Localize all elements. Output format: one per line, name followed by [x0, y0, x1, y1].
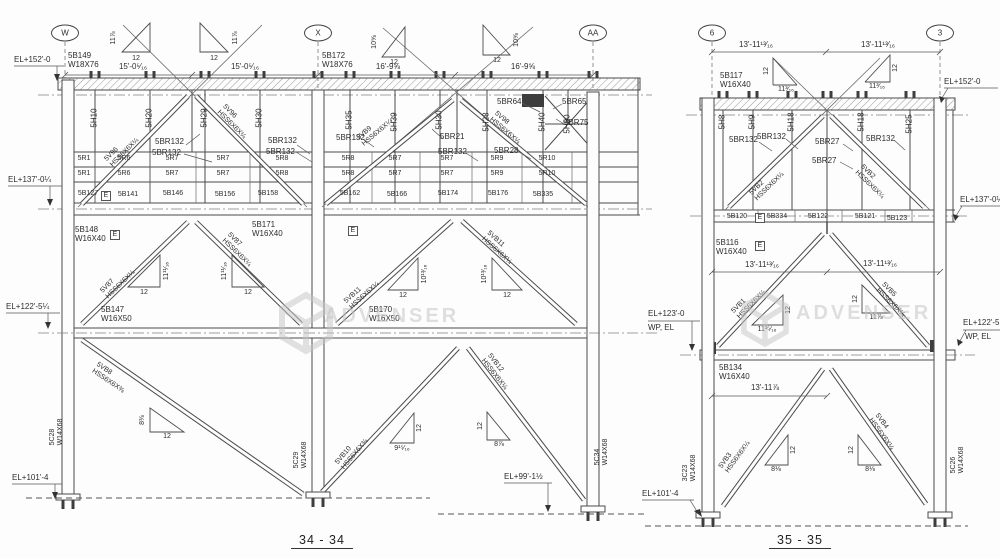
elevation-label: EL+101'-4	[642, 490, 678, 499]
brace-label: 5BR132	[268, 137, 297, 146]
dimension: 13'-11¹³⁄₁₆	[861, 41, 895, 50]
elevation-label: EL+137'-0¼	[8, 176, 51, 185]
brace-label: 5BR21	[440, 133, 464, 142]
rail-label: 5R7	[441, 170, 454, 178]
rail-label: 5R7	[166, 170, 179, 178]
chord-beam-label: 5B121	[855, 213, 875, 221]
slope-run: 12	[390, 59, 398, 67]
slope-run: 12	[848, 446, 856, 454]
slope-run: 12	[416, 424, 424, 432]
vertical-member-label: 5H8	[719, 115, 728, 130]
column-label: 5C34W14X68	[594, 439, 610, 466]
slope-run: 12	[493, 57, 501, 65]
chord-beam-label: 5B174	[438, 190, 458, 198]
slope-rise: 8⅜	[139, 415, 147, 425]
brace-label: 5BR132	[757, 133, 786, 142]
chord-beam-label: 5B141	[118, 191, 138, 199]
chord-beam-label: 5B162	[340, 190, 360, 198]
elevation-label: EL+101'-4	[12, 474, 48, 483]
slope-run: 12	[399, 292, 407, 300]
slope-rise: 10¹³⁄₁₆	[421, 265, 429, 284]
slope-run: 12	[163, 433, 171, 441]
slope-run: 12	[210, 55, 218, 63]
vertical-member-label: 5H18	[788, 112, 797, 131]
brace-label: 5BR65	[562, 98, 586, 107]
rail-label: 5R7	[217, 155, 230, 163]
elevation-label: EL+137'-0¼	[960, 196, 1000, 205]
slope-rise: 11¹⁵⁄₁₆	[758, 326, 777, 334]
vertical-member-label: 5H29	[201, 108, 210, 127]
beam-label: 5B147W16X50	[101, 306, 132, 324]
chord-beam-label: 5B120	[727, 213, 747, 221]
dimension: 13'-11¹³⁄₁₆	[739, 41, 773, 50]
dimension: 13'-11¹³⁄₁₆	[863, 260, 897, 269]
rail-label: 5R7	[217, 170, 230, 178]
brace-label: 5BR132	[266, 148, 295, 157]
brace-label: 5BR132	[729, 136, 758, 145]
elevation-label: EL+122'-5¼	[6, 303, 49, 312]
rail-label: 5R8	[342, 155, 355, 163]
slope-run: 12	[763, 67, 771, 75]
beam-label: 5B148W16X40	[75, 226, 106, 244]
slope-run: 12	[790, 446, 798, 454]
slope-rise: 11¹¹⁄₁₆	[221, 262, 229, 280]
grid-bubble-aa: AA	[579, 25, 607, 42]
brace-label: 5BR75	[564, 119, 588, 128]
rail-label: 5R1	[78, 155, 91, 163]
brace-label: 5BR132	[155, 138, 184, 147]
column-label: 5C28W14X68	[49, 419, 65, 446]
brace-label: 5BR64	[497, 98, 521, 107]
vertical-member-label: 5H30	[256, 108, 265, 127]
rail-label: 5R8	[342, 170, 355, 178]
column-label: 5C26W14X68	[950, 447, 966, 474]
chord-beam-label: 5B334	[767, 213, 787, 221]
vertical-member-label: 5H40	[539, 112, 548, 131]
chord-beam-label: 5B156	[215, 191, 235, 199]
elevation-label: EL+99'-1½	[504, 473, 543, 482]
column-label: 3C23W14X68	[682, 455, 698, 482]
embed-flag: E	[755, 213, 765, 223]
beam-label: 5B134W16X40	[719, 364, 750, 382]
section-title-35: 35 - 35	[769, 533, 831, 549]
slope-rise: 11⅞	[869, 314, 882, 322]
rail-label: 5R7	[389, 170, 402, 178]
slope-run: 12	[132, 55, 140, 63]
brace-label: 5BR132	[438, 148, 467, 157]
slope-rise: 11³⁄₁₆	[778, 86, 794, 94]
chord-beam-label: 5B146	[163, 190, 183, 198]
slope-rise: 11¹¹⁄₁₆	[163, 262, 171, 280]
dimension: 15'-0⁵⁄₁₆	[231, 63, 259, 72]
slope-run: 12	[477, 422, 485, 430]
vertical-member-label: 5H25	[906, 114, 915, 133]
vertical-member-label: 5H30	[436, 110, 445, 129]
slope-run: 12	[503, 292, 511, 300]
slope-rise: 10⅝	[513, 33, 521, 47]
beam-label: 5B171W16X40	[252, 221, 283, 239]
vertical-member-label: 5H10	[91, 108, 100, 127]
girder-label: 5B172W18X76	[322, 52, 353, 70]
rail-label: 5R10	[539, 170, 556, 178]
girder-label: 5B117W16X40	[720, 72, 751, 90]
workpoint-label: WP, EL	[965, 333, 991, 342]
slope-rise: 11³⁄₁₆	[869, 83, 885, 91]
brace-label: 5BR27	[812, 157, 836, 166]
dimension: 13'-11⅞	[751, 384, 779, 393]
slope-rise: 8⅞	[494, 441, 504, 449]
chord-beam-label: 5B127	[78, 190, 98, 198]
brace-label: 5BR132	[152, 149, 181, 158]
slope-run: 12	[785, 306, 793, 314]
chord-beam-label: 5B166	[387, 191, 407, 199]
rail-label: 5R9	[491, 170, 504, 178]
slope-rise: 11⅞	[110, 31, 118, 44]
rail-label: 5R7	[389, 155, 402, 163]
brace-label: 5BR28	[494, 147, 518, 156]
elevation-label: EL+123'-0	[648, 310, 684, 319]
chord-beam-label: 5B176	[488, 190, 508, 198]
slope-rise: 10⅝	[371, 35, 379, 49]
drawing-sheet: ADVENSER ADVENSER W X AA 6 3 34 - 34 35 …	[0, 0, 1000, 559]
slope-rise: 8⅛	[771, 466, 781, 474]
slope-run: 12	[140, 289, 148, 297]
chord-beam-label: 5B123	[887, 215, 907, 223]
grid-bubble-6: 6	[698, 25, 726, 42]
vertical-member-label: 5H9	[749, 115, 758, 130]
slope-rise: 10¹³⁄₁₆	[481, 265, 489, 284]
chord-beam-label: 5B122	[808, 213, 828, 221]
slope-rise: 8⅛	[865, 466, 875, 474]
brace-label: 5BR27	[815, 138, 839, 147]
embed-flag: E	[755, 241, 765, 251]
embed-flag: E	[348, 226, 358, 236]
slope-rise: 11⅞	[232, 31, 240, 44]
drawing-linework	[0, 0, 1000, 559]
rail-label: 5R9	[491, 155, 504, 163]
section-title-34: 34 - 34	[291, 533, 353, 549]
slope-run: 12	[244, 289, 252, 297]
girder-label: 5B149W18X76	[68, 52, 99, 70]
rail-label: 5R8	[276, 170, 289, 178]
grid-bubble-x: X	[304, 25, 332, 42]
elevation-label: EL+122'-5	[963, 319, 999, 328]
beam-label: 5B170W16X50	[369, 306, 400, 324]
slope-rise: 9¹⁵⁄₁₆	[394, 445, 409, 453]
dimension: 13'-11¹³⁄₁₆	[745, 261, 779, 270]
brace-label: 5BR132	[866, 135, 895, 144]
embed-flag: E	[110, 230, 120, 240]
elevation-label: EL+152'-0	[944, 78, 980, 87]
grid-bubble-w: W	[51, 25, 79, 42]
rail-label: 5R1	[78, 170, 91, 178]
dimension: 15'-0⁵⁄₁₆	[119, 63, 147, 72]
vertical-member-label: 5H20	[146, 108, 155, 127]
dimension: 16'-9⅝	[511, 63, 535, 72]
beam-label: 5B116W16X40	[716, 239, 747, 257]
grid-bubble-3: 3	[926, 25, 954, 42]
vertical-member-label: 5H35	[346, 110, 355, 129]
column-label: 5C29W14X68	[293, 442, 309, 469]
vertical-member-label: 5H18	[858, 112, 867, 131]
embed-flag: E	[101, 191, 111, 201]
slope-run: 12	[852, 295, 860, 303]
slope-run: 12	[892, 64, 900, 72]
chord-beam-label: 5B335	[533, 191, 553, 199]
workpoint-label: WP, EL	[648, 324, 674, 333]
rail-label: 5R6	[118, 170, 131, 178]
elevation-label: EL+152'-0	[14, 56, 50, 65]
chord-beam-label: 5B158	[258, 190, 278, 198]
rail-label: 5R10	[539, 155, 556, 163]
